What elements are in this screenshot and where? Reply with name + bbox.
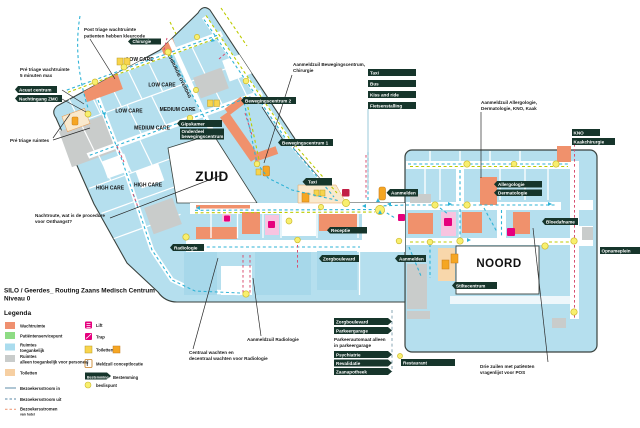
svg-text:Opnameplein: Opnameplein: [602, 249, 631, 254]
svg-text:Ruimtes: Ruimtes: [20, 354, 37, 359]
svg-text:Dermatologie: Dermatologie: [498, 191, 528, 196]
svg-text:Revalidatie: Revalidatie: [336, 361, 361, 366]
svg-text:Bezoekersstroom uit: Bezoekersstroom uit: [20, 397, 62, 402]
svg-text:Parkeergarage: Parkeergarage: [336, 329, 368, 334]
svg-text:LOW CARE: LOW CARE: [115, 109, 143, 115]
svg-text:Bus: Bus: [370, 82, 379, 87]
svg-text:Radiologie: Radiologie: [174, 246, 198, 251]
svg-text:MEDIUM CARE: MEDIUM CARE: [134, 126, 170, 132]
svg-text:Bloedafname: Bloedafname: [546, 220, 575, 225]
svg-text:ZUID: ZUID: [195, 169, 229, 184]
svg-text:Kiss and ride: Kiss and ride: [370, 93, 399, 98]
svg-text:Legenda: Legenda: [4, 310, 31, 317]
svg-text:Zaanapotheek: Zaanapotheek: [336, 370, 367, 375]
svg-text:Fietsenstalling: Fietsenstalling: [370, 104, 402, 109]
svg-text:Bewegingscentrum 2: Bewegingscentrum 2: [245, 99, 292, 104]
svg-text:Bezoekersstroom in: Bezoekersstroom in: [20, 386, 60, 391]
svg-text:Chirurgie: Chirurgie: [133, 39, 152, 44]
svg-text:Ruimtes: Ruimtes: [20, 343, 37, 348]
svg-text:Chirurgie: Chirurgie: [293, 68, 314, 73]
svg-text:Aanmelden: Aanmelden: [399, 257, 424, 262]
svg-text:NOORD: NOORD: [476, 258, 521, 270]
svg-text:Gipskamer: Gipskamer: [181, 122, 205, 127]
svg-text:Aanmeldzuil Bewegingscentrum,: Aanmeldzuil Bewegingscentrum,: [293, 62, 365, 67]
svg-text:Receptie: Receptie: [331, 228, 351, 233]
svg-text:KNO: KNO: [574, 131, 585, 136]
svg-text:Toiletten: Toiletten: [20, 371, 38, 376]
svg-text:Niveau 0: Niveau 0: [4, 296, 31, 303]
svg-text:van hotel: van hotel: [20, 413, 35, 417]
svg-text:HIGH CARE: HIGH CARE: [134, 183, 163, 189]
svg-text:Bestemming: Bestemming: [87, 376, 109, 380]
svg-text:decentraal wachten voor Radiol: decentraal wachten voor Radiologie: [189, 356, 268, 361]
svg-text:toegankelijk: toegankelijk: [20, 348, 45, 353]
svg-text:5 minuten max: 5 minuten max: [20, 73, 53, 78]
svg-text:patienten hebben kleurcode: patienten hebben kleurcode: [84, 34, 145, 39]
svg-text:MEDIUM CARE: MEDIUM CARE: [160, 107, 196, 113]
svg-text:in parkeergarage: in parkeergarage: [334, 343, 371, 348]
svg-text:Meldzuil conceptlocatie: Meldzuil conceptlocatie: [96, 362, 144, 367]
svg-text:Aanmeldzuil Allergologie,: Aanmeldzuil Allergologie,: [481, 100, 537, 105]
svg-text:Aanmelden: Aanmelden: [391, 191, 416, 196]
svg-text:vragenlijst voor POS: vragenlijst voor POS: [480, 370, 525, 375]
svg-text:Zorgboulevard: Zorgboulevard: [323, 257, 355, 262]
svg-text:Bestemming: Bestemming: [113, 375, 139, 380]
svg-text:Bezoekersstromen: Bezoekersstromen: [20, 407, 58, 412]
svg-text:HIGH CARE: HIGH CARE: [96, 186, 125, 192]
svg-text:Wachtruimte: Wachtruimte: [20, 324, 46, 329]
svg-text:LOW CARE: LOW CARE: [148, 83, 176, 89]
svg-text:Drie zuilen met patiënten: Drie zuilen met patiënten: [480, 364, 535, 369]
svg-text:Patiëntenservicepunt: Patiëntenservicepunt: [20, 334, 63, 339]
svg-text:Parkeerautomaat alleen: Parkeerautomaat alleen: [334, 337, 386, 342]
svg-text:beslispunt: beslispunt: [96, 383, 118, 388]
svg-text:Pré triage ruimtes: Pré triage ruimtes: [10, 138, 50, 143]
svg-text:Centraal wachten en: Centraal wachten en: [189, 350, 234, 355]
svg-text:voor Onthangst?: voor Onthangst?: [35, 219, 72, 224]
svg-text:Dermatologie, KNO, Kaak: Dermatologie, KNO, Kaak: [481, 106, 537, 111]
svg-text:Post triage wachtruimte: Post triage wachtruimte: [84, 27, 137, 32]
svg-text:LOW CARE: LOW CARE: [126, 57, 154, 63]
svg-text:Acuut centrum: Acuut centrum: [19, 88, 51, 93]
svg-text:Nachtroute, wat is de procedur: Nachtroute, wat is de procedure: [35, 213, 105, 218]
svg-text:Aanmeldzuil Radiologie: Aanmeldzuil Radiologie: [247, 337, 299, 342]
svg-text:Zorgboulevard: Zorgboulevard: [336, 320, 368, 325]
svg-text:Allergologie: Allergologie: [498, 182, 525, 187]
svg-text:Trap: Trap: [96, 335, 105, 340]
svg-text:Taxi: Taxi: [370, 71, 379, 76]
svg-text:Kaakchirurgie: Kaakchirurgie: [574, 140, 605, 145]
svg-text:Psychiatrie: Psychiatrie: [336, 353, 361, 358]
svg-text:Bewegingscentrum 1: Bewegingscentrum 1: [282, 141, 329, 146]
svg-text:Restaurant: Restaurant: [403, 361, 427, 366]
svg-text:Stiltecentrum: Stiltecentrum: [456, 284, 485, 289]
svg-text:Toiletten: Toiletten: [96, 348, 114, 353]
svg-text:Taxi: Taxi: [308, 180, 317, 185]
svg-text:Nachtingang ZMC: Nachtingang ZMC: [19, 97, 59, 102]
svg-text:alleen toegankelijk voor perso: alleen toegankelijk voor personeel: [20, 360, 88, 365]
svg-text:Pré triage wachtruimte: Pré triage wachtruimte: [20, 67, 70, 72]
svg-text:Lift: Lift: [96, 323, 103, 328]
svg-text:bewegingscentrum: bewegingscentrum: [182, 134, 224, 139]
svg-text:SILO / Geerdes_ Routing Zaans: SILO / Geerdes_ Routing Zaans Medisch Ce…: [4, 288, 155, 295]
